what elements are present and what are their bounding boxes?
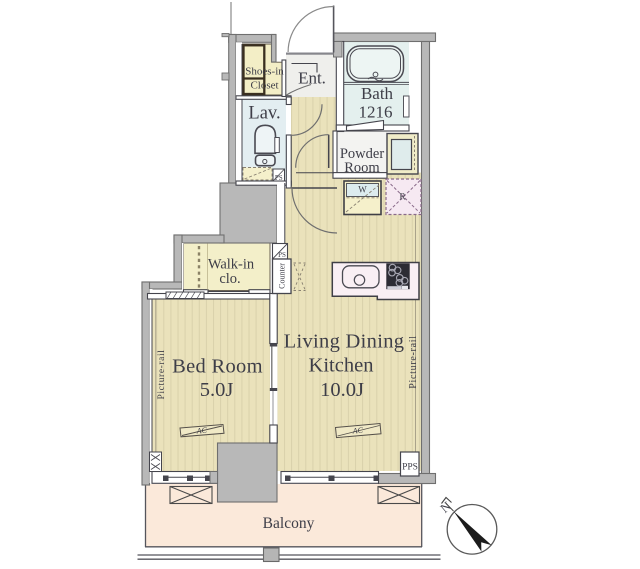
svg-text:1216: 1216 — [359, 103, 393, 122]
svg-text:W: W — [358, 185, 367, 195]
svg-text:R: R — [399, 193, 406, 203]
svg-text:PS: PS — [278, 251, 286, 259]
svg-text:5.0J: 5.0J — [200, 379, 234, 401]
svg-text:clo.: clo. — [219, 271, 240, 287]
svg-text:PS: PS — [275, 174, 283, 182]
svg-text:Picture-rail: Picture-rail — [408, 335, 419, 388]
svg-text:Bed Room: Bed Room — [172, 356, 263, 378]
svg-text:Counter: Counter — [278, 263, 287, 289]
svg-text:AC: AC — [351, 426, 364, 436]
svg-text:AC: AC — [195, 426, 208, 436]
svg-text:Kitchen: Kitchen — [309, 355, 374, 377]
svg-text:PPS: PPS — [402, 463, 418, 473]
svg-text:Room: Room — [344, 160, 380, 176]
svg-text:Closet: Closet — [250, 80, 278, 92]
svg-text:Bath: Bath — [361, 84, 394, 103]
svg-text:Lav.: Lav. — [248, 104, 280, 124]
svg-text:Ent.: Ent. — [298, 69, 326, 88]
svg-text:Living Dining: Living Dining — [284, 331, 405, 353]
svg-text:10.0J: 10.0J — [320, 379, 364, 401]
svg-text:Shoes-in: Shoes-in — [245, 66, 284, 78]
svg-text:Balcony: Balcony — [263, 515, 315, 532]
svg-text:Picture-rail: Picture-rail — [157, 350, 167, 400]
